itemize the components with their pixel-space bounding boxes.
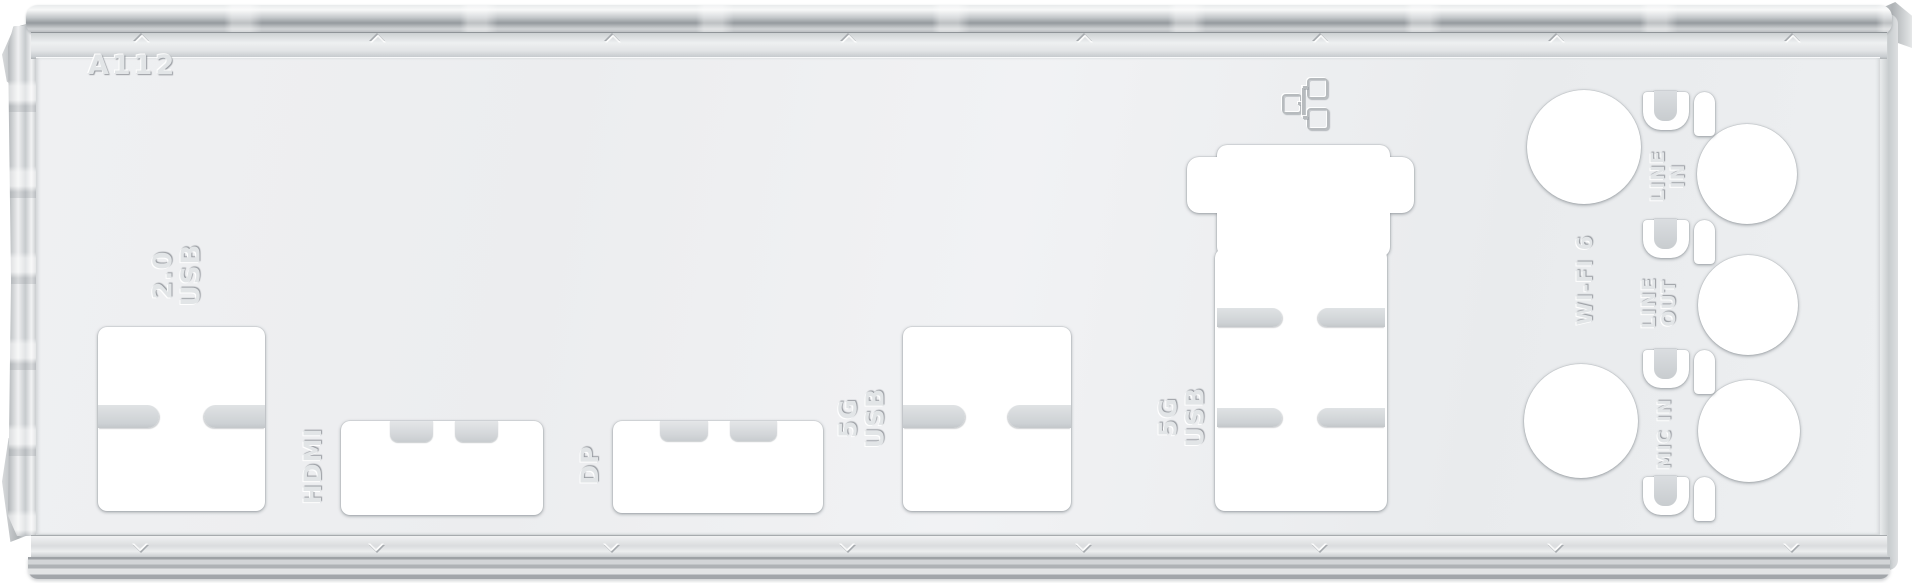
chevron-mark	[133, 545, 149, 553]
bent-metal-tab	[660, 421, 708, 441]
chevron-mark	[1076, 33, 1092, 41]
chevron-mark	[1784, 545, 1800, 553]
chevron-mark	[840, 33, 856, 41]
dp-label: DP	[576, 445, 604, 485]
top-flange	[26, 5, 1892, 35]
chevron-mark	[369, 33, 385, 41]
chevron-mark	[133, 33, 149, 41]
chevron-mark	[369, 545, 385, 553]
clip-slot	[1643, 350, 1715, 400]
bent-metal-tab	[1654, 91, 1677, 121]
bent-metal-tab	[903, 405, 965, 428]
clip-slot	[1643, 477, 1715, 527]
top-band	[31, 32, 1887, 59]
wifi-label: WI-FI 6	[1573, 235, 1597, 326]
bent-metal-tab	[1654, 349, 1677, 379]
stamp-code: A112	[88, 50, 177, 81]
line-in-label: LINE IN	[1648, 150, 1688, 202]
chevron-mark	[1076, 545, 1092, 553]
wifi-antenna-hole	[1524, 364, 1638, 478]
chevron-mark	[1312, 33, 1328, 41]
usb5g-right-label: 5G USB	[1156, 387, 1209, 447]
bent-metal-tab	[98, 405, 159, 428]
bottom-flange	[28, 557, 1890, 579]
hdmi-label: HDMI	[299, 428, 327, 505]
bent-metal-tab	[390, 421, 433, 442]
chevron-mark	[1548, 33, 1564, 41]
chevron-mark	[840, 545, 856, 553]
line-out-jack-hole	[1698, 255, 1798, 355]
bent-metal-tab	[1217, 308, 1282, 327]
bent-metal-tab	[455, 421, 498, 442]
bent-metal-tab	[1217, 408, 1282, 427]
bent-metal-tab	[1654, 476, 1677, 506]
bent-metal-tab	[1008, 405, 1071, 428]
lan-icon	[1278, 74, 1334, 136]
bent-metal-tab	[1318, 408, 1385, 427]
chevron-mark	[1784, 33, 1800, 41]
clip-slot	[1643, 92, 1715, 142]
wifi-antenna-hole	[1527, 90, 1641, 204]
usb5g-left-label: 5G USB	[836, 388, 889, 448]
bent-metal-tab	[1654, 219, 1677, 249]
chevron-mark	[604, 545, 620, 553]
chevron-mark	[604, 33, 620, 41]
bent-metal-tab	[1318, 308, 1385, 327]
io-shield-photo: A112 2.0 USB HDMI DP 5G USB	[0, 0, 1914, 583]
bottom-band	[31, 535, 1887, 558]
chevron-mark	[1312, 545, 1328, 553]
chevron-mark	[1548, 545, 1564, 553]
left-fold-edge	[8, 26, 38, 536]
bent-metal-tab	[204, 405, 265, 428]
usb20-label: 2.0 USB	[150, 244, 205, 307]
clip-slot	[1643, 220, 1715, 270]
mic-in-label: MIC IN	[1655, 398, 1676, 470]
line-out-label: LINE OUT	[1639, 277, 1679, 329]
bent-metal-tab	[730, 421, 777, 441]
